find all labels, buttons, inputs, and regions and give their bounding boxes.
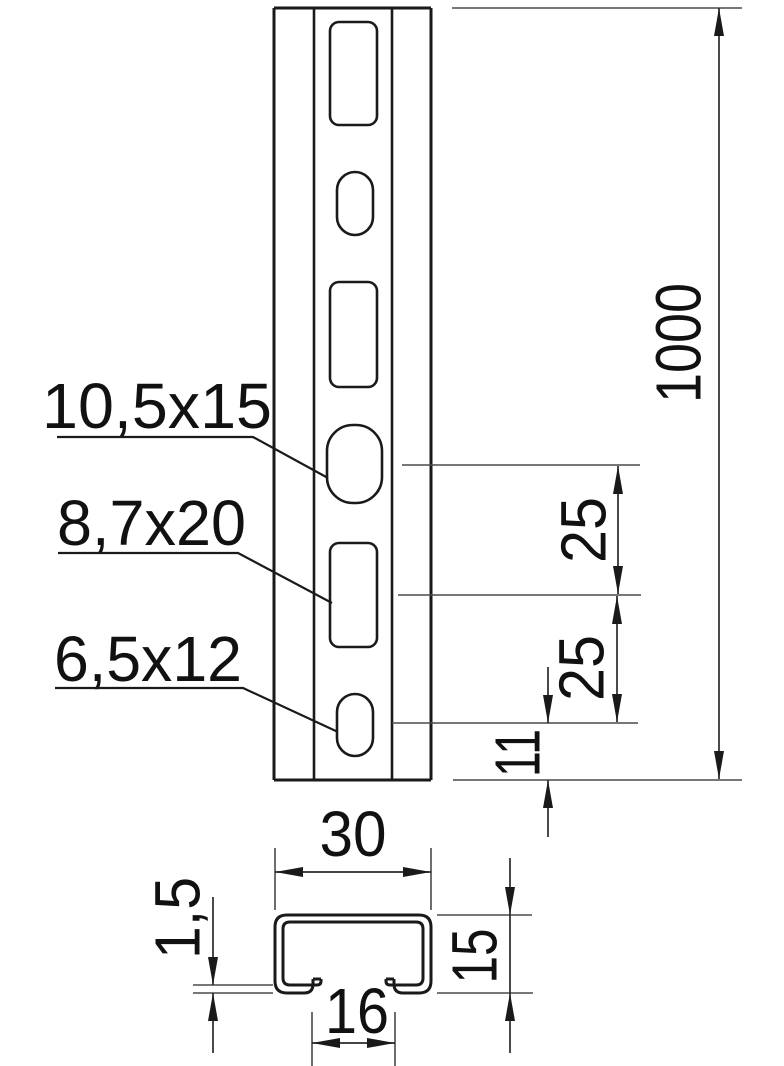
arrowhead-up-icon xyxy=(714,8,724,36)
arrowhead-up-icon xyxy=(543,780,553,808)
arrowhead-up-icon xyxy=(613,466,623,494)
hole-slot-3 xyxy=(330,543,377,647)
dimension-profile-height: 15 xyxy=(437,858,533,1053)
label-hole-round: 10,5x15 xyxy=(42,370,272,442)
technical-drawing-page: 10,5x15 8,7x20 6,5x12 1000 25 xyxy=(0,0,784,1066)
dimension-material-thickness: 1,5 xyxy=(141,877,273,1053)
leader-line-hole-round xyxy=(57,437,328,478)
dim-text-25b: 25 xyxy=(545,635,617,701)
label-hole-oval: 6,5x12 xyxy=(54,623,242,695)
dim-text-15: 15 xyxy=(438,929,510,984)
hole-round-1 xyxy=(327,425,382,503)
arrowhead-up-icon xyxy=(612,596,622,624)
leader-line-hole-slot xyxy=(58,553,332,603)
dimension-opening-width: 16 xyxy=(312,975,395,1066)
arrowhead-left-icon xyxy=(275,867,303,877)
dim-text-11: 11 xyxy=(481,729,553,777)
rail-front-view xyxy=(274,8,431,780)
hole-oval-2 xyxy=(337,694,373,756)
dim-text-1000: 1000 xyxy=(642,283,714,403)
arrowhead-down-icon xyxy=(543,695,553,723)
hole-slot-2 xyxy=(330,282,377,387)
dimension-profile-width: 30 xyxy=(275,798,431,910)
arrowhead-down-icon xyxy=(613,566,623,594)
arrowhead-up-icon xyxy=(505,993,515,1021)
dim-text-25a: 25 xyxy=(547,497,619,563)
rail-dimension-drawing: 10,5x15 8,7x20 6,5x12 1000 25 xyxy=(0,0,784,1066)
arrowhead-down-icon xyxy=(208,957,218,985)
dim-text-16: 16 xyxy=(325,975,389,1047)
arrowhead-right-icon xyxy=(403,867,431,877)
dim-text-30: 30 xyxy=(320,798,387,870)
arrowhead-up-icon xyxy=(208,993,218,1021)
label-hole-slot: 8,7x20 xyxy=(57,487,246,559)
hole-labels: 10,5x15 8,7x20 6,5x12 xyxy=(42,370,338,732)
arrowhead-down-icon xyxy=(714,751,724,779)
hole-slot-1 xyxy=(330,22,377,125)
hole-oval-1 xyxy=(337,172,373,235)
dim-text-1-5: 1,5 xyxy=(141,877,213,959)
arrowhead-down-icon xyxy=(505,887,515,915)
